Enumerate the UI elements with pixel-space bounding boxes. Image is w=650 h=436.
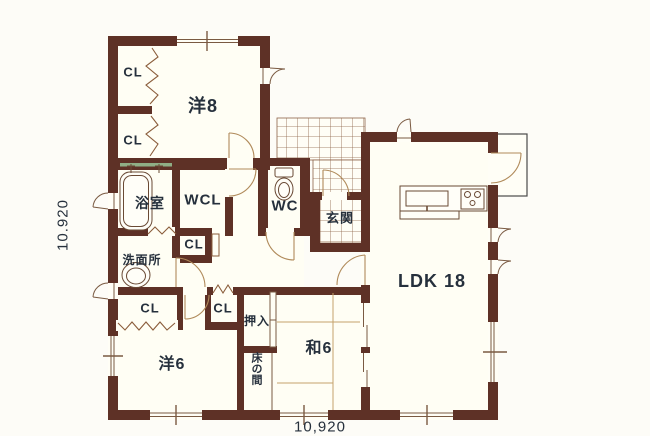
label-closet-e: CL bbox=[213, 302, 232, 315]
folding-door-cl-top bbox=[145, 47, 158, 105]
label-tokonoma: 床の間 bbox=[250, 352, 261, 385]
window-awning-ldk-right-1 bbox=[488, 228, 511, 242]
window-awning-bath-left bbox=[93, 193, 118, 209]
label-wc: WC bbox=[272, 199, 299, 214]
window-awning-west8-right bbox=[260, 68, 285, 84]
label-western8: 洋8 bbox=[188, 97, 218, 115]
folding-door-bath bbox=[148, 227, 176, 236]
stove bbox=[461, 189, 484, 209]
fusuma-ldk-japanese6-1 bbox=[361, 303, 370, 347]
label-closet-a: CL bbox=[123, 66, 142, 79]
label-bath: 浴室 bbox=[135, 196, 165, 210]
dimension-horizontal: 10,920 bbox=[294, 420, 346, 435]
dimension-vertical: 10.920 bbox=[56, 199, 71, 251]
fusuma-oshiire bbox=[270, 292, 276, 347]
toilet bbox=[275, 168, 293, 200]
label-ldk: LDK 18 bbox=[398, 272, 466, 290]
label-japanese6: 和6 bbox=[306, 341, 333, 357]
door-cl3 bbox=[212, 234, 219, 256]
label-oshiire: 押入 bbox=[244, 315, 270, 327]
label-closet-c: CL bbox=[184, 238, 203, 251]
label-entrance: 玄関 bbox=[326, 212, 354, 225]
door-ldk-hall bbox=[337, 252, 370, 285]
window-awning-washroom-left bbox=[93, 283, 118, 299]
floor-plan: CL 洋8 CL 浴室 WCL WC 玄関 洗面所 CL LDK 18 CL C… bbox=[0, 0, 650, 436]
folding-door-cl-west6 bbox=[116, 320, 178, 331]
label-washroom: 洗面所 bbox=[122, 254, 161, 266]
label-wcl: WCL bbox=[184, 193, 221, 208]
fusuma-ldk-japanese6-2 bbox=[361, 353, 370, 387]
folding-door-cl-bottom bbox=[145, 115, 158, 157]
counter-shelf bbox=[400, 211, 459, 219]
kitchen-porch bbox=[497, 134, 527, 196]
label-western6: 洋6 bbox=[159, 357, 186, 373]
label-closet-d: CL bbox=[140, 302, 159, 315]
window-awning-ldk-right-2 bbox=[488, 260, 511, 274]
window-awning-ldk-top bbox=[397, 119, 411, 142]
label-closet-b: CL bbox=[123, 134, 142, 147]
